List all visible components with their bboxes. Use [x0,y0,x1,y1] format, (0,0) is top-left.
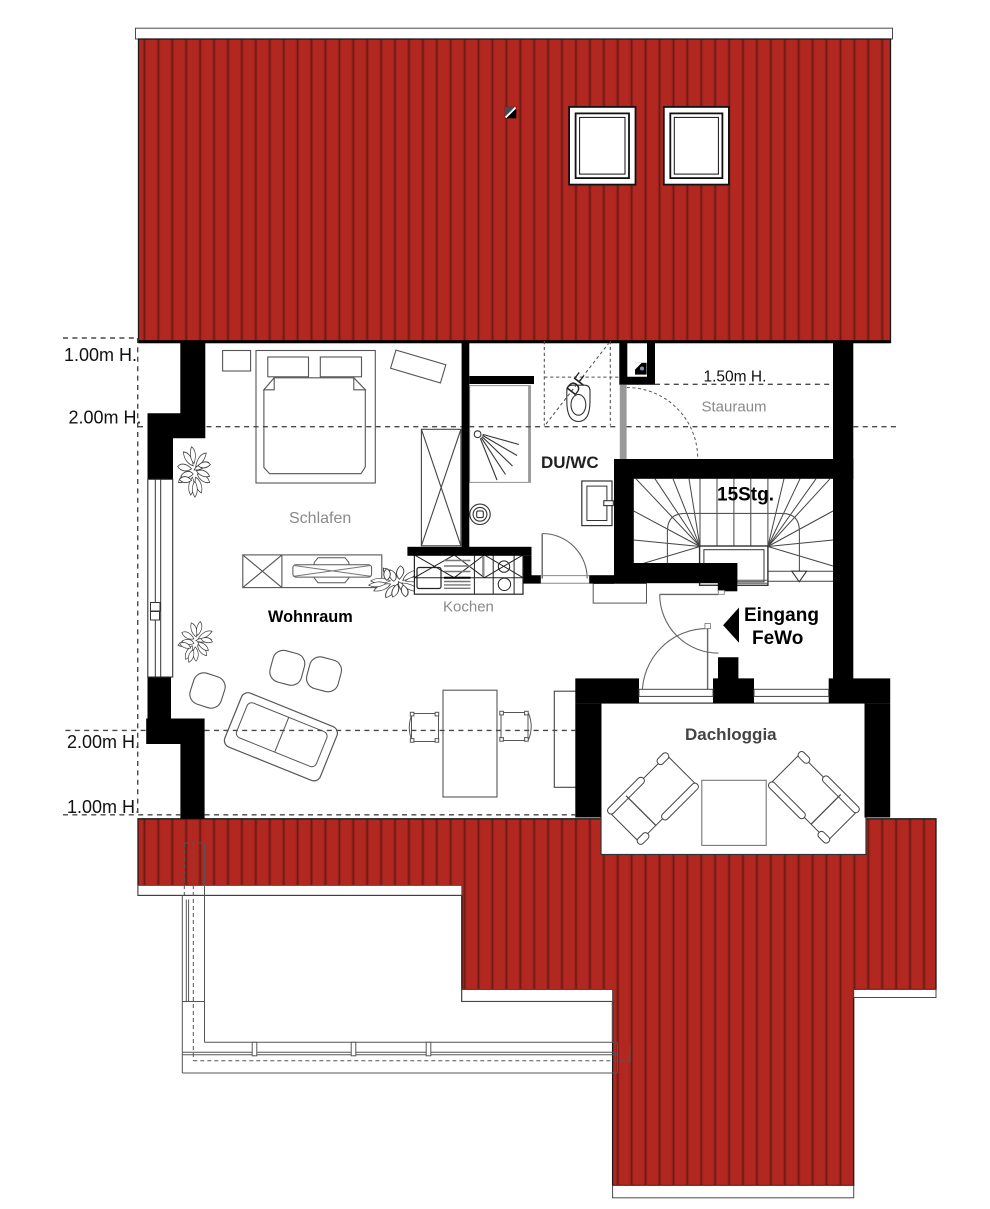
svg-text:2.00m H.: 2.00m H. [67,732,140,752]
svg-text:Stauraum: Stauraum [702,398,767,415]
svg-text:Wohnraum: Wohnraum [268,608,353,626]
svg-text:Eingang: Eingang [744,605,819,626]
svg-text:2.00m H.: 2.00m H. [69,408,142,428]
svg-text:1.00m H.: 1.00m H. [64,345,137,365]
svg-text:Schlafen: Schlafen [289,510,351,527]
svg-text:Dachloggia: Dachloggia [685,725,777,744]
svg-text:DU/WC: DU/WC [541,453,599,472]
svg-text:Kochen: Kochen [443,599,494,616]
svg-text:1.50m H.: 1.50m H. [704,368,767,385]
svg-text:FeWo: FeWo [752,628,803,649]
svg-text:15Stg.: 15Stg. [717,485,774,506]
